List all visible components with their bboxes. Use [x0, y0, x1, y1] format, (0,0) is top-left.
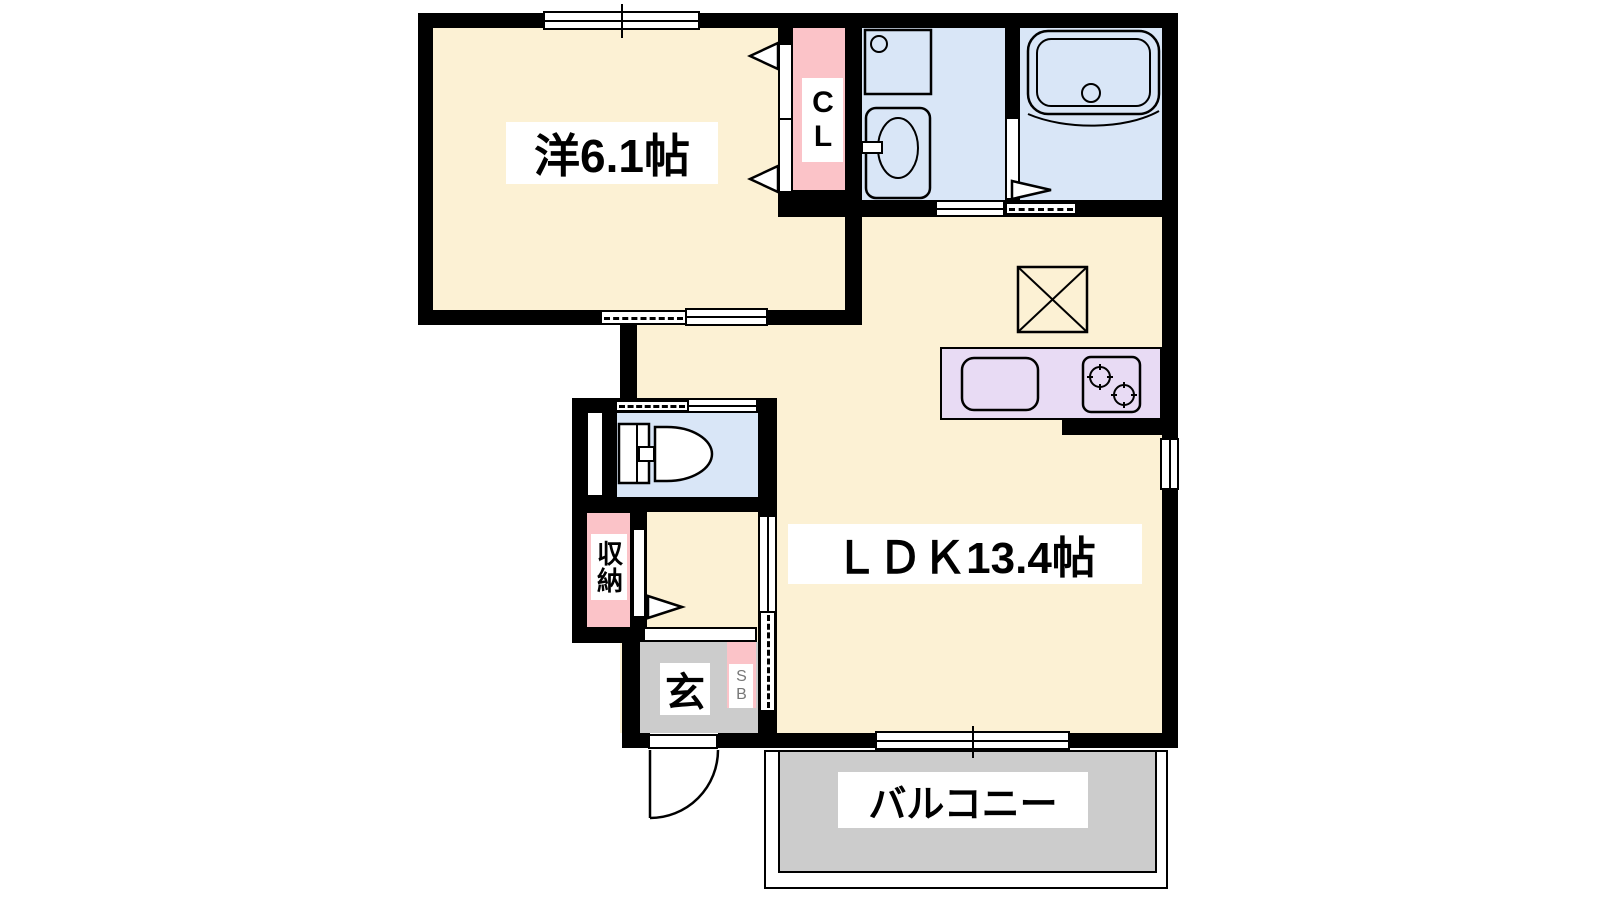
wall-closet-top-stub [778, 28, 793, 43]
wall-bottom-c [1070, 733, 1178, 748]
storage-door [632, 528, 646, 618]
wall-bottom-a [622, 733, 650, 748]
toilet-floor [617, 413, 758, 497]
sliding-door-washroom-panel [935, 200, 1005, 217]
sliding-door-hall-panel [758, 515, 777, 613]
toilet-window [588, 413, 602, 495]
wall-kitchen-stub [1062, 420, 1162, 435]
sliding-door-toilet-panel [687, 398, 758, 413]
wall-entrance-left [622, 627, 640, 748]
sliding-door-western-track [602, 310, 685, 325]
entrance-door [650, 750, 718, 818]
window-ldk-bottom [875, 731, 1070, 750]
kitchen-counter [940, 347, 1162, 420]
bathroom-floor [1020, 28, 1162, 200]
label-closet: CL [802, 78, 843, 162]
wall-top [418, 13, 1178, 28]
sliding-door-hall-track [759, 613, 776, 710]
wall-closet-divider [845, 13, 862, 325]
wall-corridor-left [620, 325, 637, 400]
label-balcony: バルコニー [838, 772, 1088, 828]
wall-washroom-bath-divider [1005, 28, 1020, 120]
floorplan-canvas: 洋6.1帖 ＬＤＫ13.4帖 CL 収納 玄 SB バルコニー [0, 0, 1600, 900]
window-western-room-top [543, 11, 700, 30]
folding-door-closet [778, 43, 793, 193]
sliding-door-toilet-track [617, 400, 687, 412]
hall-step-bar [643, 627, 757, 642]
label-shoebox: SB [729, 664, 753, 708]
window-ldk-right [1160, 438, 1179, 490]
label-ldk: ＬＤＫ13.4帖 [788, 524, 1142, 584]
wall-right [1162, 13, 1178, 748]
bathroom-door [1005, 117, 1020, 200]
sliding-door-western-panel [685, 308, 768, 326]
washroom-floor [862, 28, 1005, 200]
wall-bottom-b [718, 733, 875, 748]
wall-left [418, 13, 433, 325]
label-entrance: 玄 [660, 663, 710, 715]
entrance-doorway [648, 734, 718, 749]
sliding-door-washroom-track [1007, 202, 1075, 215]
wall-closet-bottom [778, 190, 845, 217]
label-western-room: 洋6.1帖 [506, 122, 718, 184]
label-storage: 収納 [591, 534, 627, 600]
